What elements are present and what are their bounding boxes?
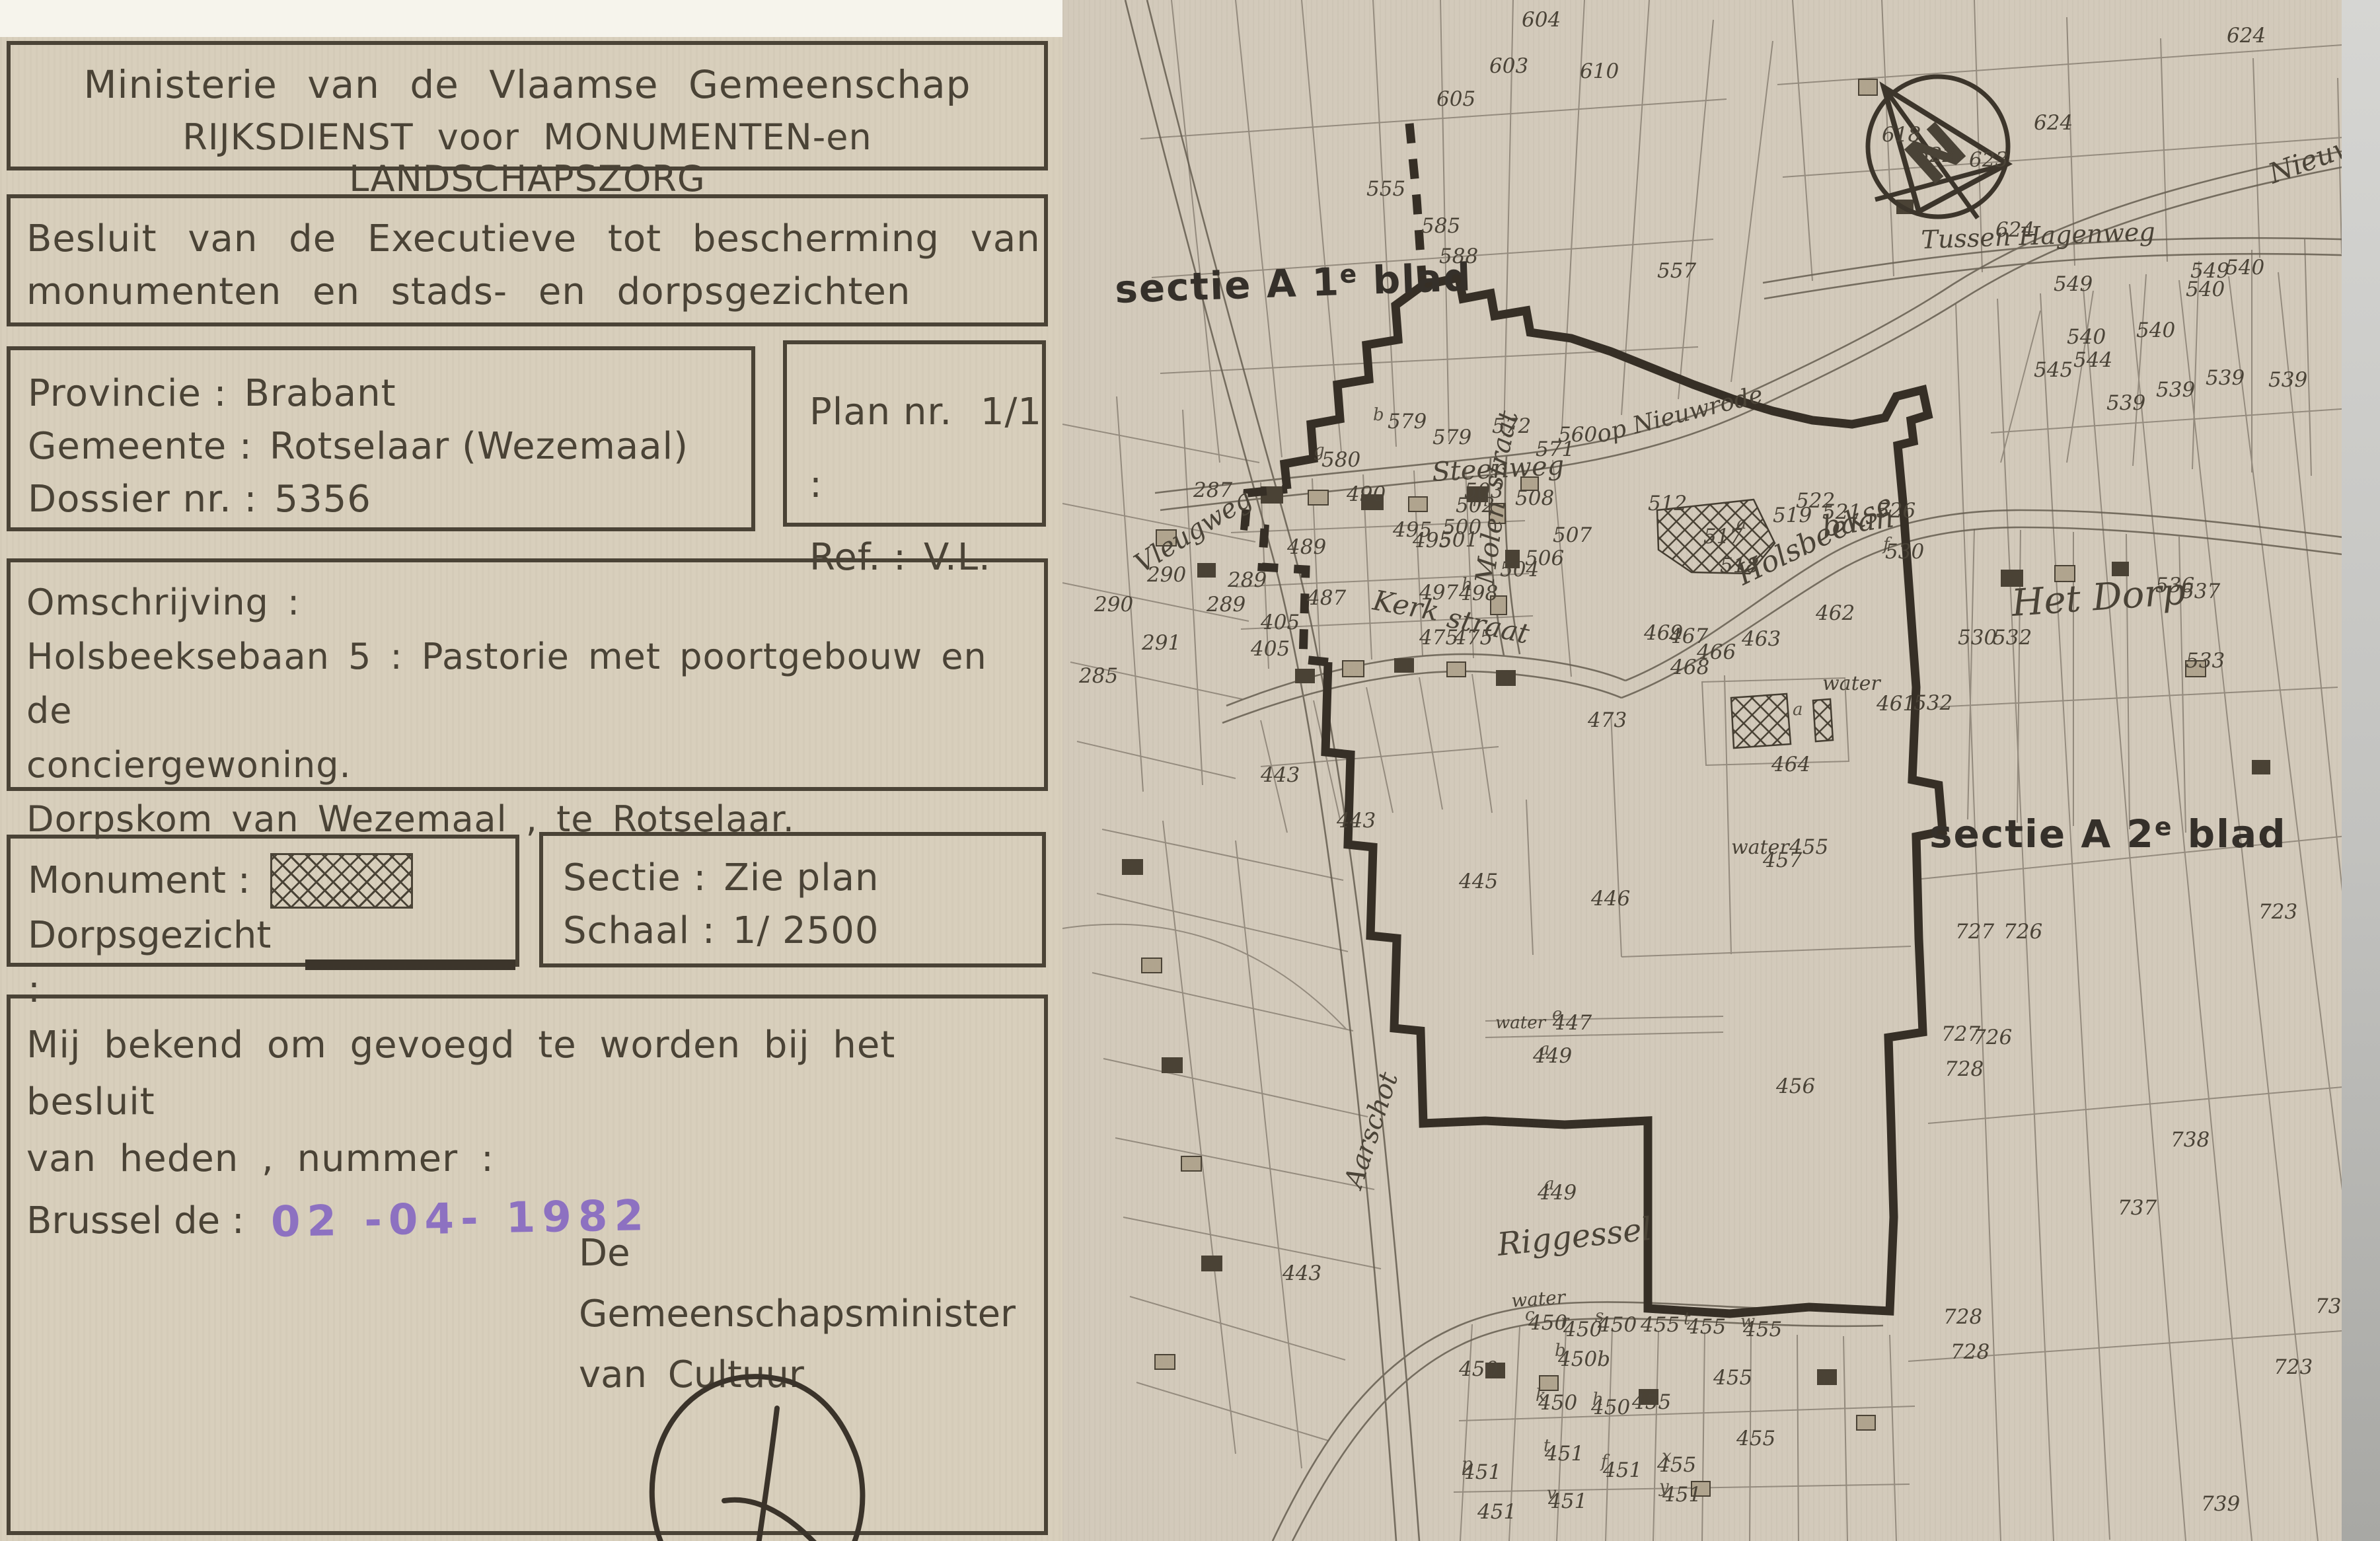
parcel-letter: a (1793, 700, 1803, 720)
parcel-number: 487 (1306, 586, 1346, 610)
dossier-row: Dossier nr. : 5356 (28, 473, 751, 526)
parcel-number: 579 (1432, 426, 1471, 449)
parcel-number: 539 (2268, 368, 2307, 392)
field-label: Provincie : (28, 367, 227, 420)
parcel-number: 537 (2181, 580, 2220, 603)
scan-top-margin (0, 0, 1062, 37)
parcel-number: 530 (1885, 540, 1924, 564)
parcel-number: 285 (1078, 664, 1118, 688)
parcel-number: 560 (1558, 423, 1597, 447)
parcel-number: 533 (2186, 649, 2225, 673)
parcel-number: 728 (1951, 1340, 1990, 1364)
field-label: Dossier nr. : (28, 473, 257, 526)
parcel-number: 624 (2227, 24, 2266, 48)
scanned-decree-page: Ministerie van de Vlaamse Gemeenschap RI… (0, 0, 2380, 1541)
field-value: Zie plan (724, 852, 879, 905)
parcel-letter: r (1561, 1312, 1570, 1332)
parcel-number: 455 (1640, 1313, 1680, 1337)
scale-row: Schaal : 1/ 2500 (563, 905, 1042, 958)
parcel-number: 540 (2067, 325, 2106, 349)
parcel-number: 462 (1815, 601, 1855, 625)
field-value: 1/1 (981, 376, 1042, 521)
parcel-letter: a (1736, 513, 1747, 533)
parcel-number: 489 (1286, 535, 1326, 559)
section-row: Sectie : Zie plan (563, 852, 1042, 905)
parcel-letter: b (1555, 1341, 1566, 1361)
legend-box: Monument : Dorpsgezicht : (7, 835, 519, 967)
parcel-number: 604 (1522, 8, 1561, 32)
street-label: Aarschot (1338, 1068, 1405, 1194)
field-label: Gemeente : (28, 420, 252, 473)
parcel-number: 580 (1321, 448, 1360, 472)
field-value: 5356 (274, 473, 371, 526)
parcel-number: 605 (1436, 87, 1475, 111)
street-label: Tussen Hagenweg (1921, 217, 2156, 254)
parcel-number: 469 (1643, 621, 1683, 645)
dorpsgezicht-line-swatch (305, 959, 515, 970)
annex-line: Mij bekend om gevoegd te worden bij het … (26, 1017, 1044, 1131)
parcel-number: 530 (1958, 626, 1997, 650)
parcel-number: 468 (1670, 656, 1709, 679)
field-label: Schaal : (563, 905, 716, 958)
annex-line: van heden , nummer : (26, 1131, 1044, 1187)
parcel-number: 405 (1260, 611, 1300, 634)
legend-monument-row: Monument : (28, 853, 515, 909)
parcel-number: 727 (1955, 920, 1994, 944)
description-box: Omschrijving : Holsbeeksebaan 5 : Pastor… (7, 558, 1048, 791)
plan-row: Plan nr. : 1/1 (809, 376, 1042, 521)
parcel-letter: t (1684, 1309, 1691, 1329)
agency-title: RIJKSDIENST voor MONUMENTEN-en LANDSCHAP… (11, 116, 1044, 200)
ministry-title: Ministerie van de Vlaamse Gemeenschap (11, 62, 1044, 107)
monument-hatch-swatch (270, 853, 413, 909)
parcel-number: 532 (1993, 626, 2032, 650)
parcel-number: 449 (1537, 1181, 1577, 1205)
parcel-number: 464 (1771, 753, 1810, 776)
parcel-letter: h (1592, 1390, 1604, 1409)
parcel-number: 446 (1590, 887, 1630, 911)
field-label: Plan nr. : (809, 376, 963, 521)
parcel-number: 507 (1553, 523, 1592, 547)
parcel-number: 555 (1366, 177, 1405, 201)
parcel-number: 723 (2274, 1355, 2313, 1379)
parcel-number: 540 (2225, 256, 2264, 280)
section-label: sectie A 1e blad (1114, 254, 1473, 312)
parcel-number: 449 (1532, 1044, 1572, 1068)
parcel-number: 473 (1587, 708, 1627, 732)
parcel-number: 549 (2054, 272, 2093, 296)
province-row: Provincie : Brabant (28, 367, 751, 420)
parcel-number: 289 (1227, 568, 1267, 592)
parcel-letter: y (1658, 1477, 1669, 1497)
description-title: Omschrijving : (26, 576, 1044, 630)
parcel-letter: v (1547, 1484, 1557, 1503)
parcel-number: 443 (1260, 763, 1300, 787)
parcel-number: 739 (2201, 1492, 2240, 1516)
parcel-number: 539 (2156, 378, 2195, 402)
parcel-number: 289 (1206, 593, 1246, 617)
parcel-number: 455 (1789, 835, 1828, 859)
description-line: conciergewoning. (26, 738, 1044, 792)
parcel-number: 455 (1713, 1366, 1752, 1390)
parcel-number: 618 (1882, 123, 1921, 147)
header-box: Ministerie van de Vlaamse Gemeenschap RI… (7, 41, 1048, 170)
street-label: water (1495, 1013, 1547, 1033)
parcel-number: 291 (1141, 631, 1181, 655)
province-box: Provincie : Brabant Gemeente : Rotselaar… (7, 346, 755, 531)
parcel-number: 443 (1336, 809, 1376, 833)
parcel-number: 290 (1094, 593, 1133, 617)
cadastral-map: N 60461060360555558558855758057957957257… (1062, 0, 2380, 1541)
legend-label: Monument : (28, 854, 250, 908)
parcel-number: 463 (1741, 627, 1781, 651)
parcel-number: 610 (1580, 59, 1619, 83)
parcel-number: 726 (2003, 920, 2042, 944)
parcel-number: 461 (1876, 692, 1915, 716)
place-label: Riggessel (1495, 1211, 1653, 1263)
parcel-number: 508 (1515, 486, 1554, 510)
parcel-number: 539 (2106, 391, 2145, 415)
parcel-number: 727 (1941, 1022, 1980, 1046)
parcel-number: 443 (1282, 1261, 1321, 1285)
parcel-number: 445 (1458, 870, 1498, 893)
parcel-number: 455 (1736, 1427, 1775, 1450)
field-label: Sectie : (563, 852, 706, 905)
scanner-edge (2342, 0, 2380, 1541)
parcel-number: 506 (1525, 546, 1564, 570)
map-panel: N 60461060360555558558855758057957957257… (1062, 0, 2380, 1541)
minister-line: De Gemeenschapsminister (579, 1223, 1044, 1345)
field-value: Brabant (244, 367, 396, 420)
parcel-number: 451 (1477, 1500, 1516, 1524)
parcel-number: 456 (1775, 1074, 1815, 1098)
parcel-number: 579 (1388, 410, 1427, 433)
parcel-number: 585 (1421, 214, 1460, 238)
parcel-number: 540 (2136, 319, 2175, 342)
plan-box: Plan nr. : 1/1 Ref. : V.L. (783, 340, 1046, 527)
parcel-letter: a (1544, 1174, 1555, 1194)
parcel-number: 728 (1945, 1057, 1984, 1081)
parcel-number: 623 (1969, 148, 2008, 172)
parcel-letter: t (1543, 1436, 1551, 1456)
parcel-letter: w (1740, 1312, 1755, 1332)
document-panel: Ministerie van de Vlaamse Gemeenschap RI… (0, 0, 1062, 1541)
parcel-number: 728 (1943, 1305, 1982, 1329)
decree-box: Besluit van de Executieve tot beschermin… (7, 194, 1048, 326)
street-label: water (1731, 836, 1790, 859)
decree-line: Besluit van de Executieve tot beschermin… (26, 213, 1044, 266)
parcel-number: 450 (1458, 1357, 1498, 1381)
field-value: 1/ 2500 (733, 905, 879, 958)
parcel-number: 737 (2118, 1196, 2157, 1220)
field-value: Rotselaar (Wezemaal) (270, 420, 688, 473)
parcel-number: 545 (2034, 358, 2073, 382)
parcel-number: 738 (2171, 1128, 2210, 1152)
annex-box: Mij bekend om gevoegd te worden bij het … (7, 995, 1048, 1535)
decree-line: monumenten en stads- en dorpsgezichten (26, 266, 1044, 319)
street-label: water (1510, 1286, 1567, 1312)
parcel-letter: b (1373, 405, 1384, 425)
parcel-number: 405 (1250, 637, 1290, 661)
parcel-letter: g (1314, 441, 1325, 461)
parcel-number: 532 (1914, 691, 1952, 715)
parcel-number: 455 (1686, 1315, 1726, 1339)
parcel-letter: e (1552, 1004, 1562, 1024)
scale-box: Sectie : Zie plan Schaal : 1/ 2500 (539, 832, 1046, 967)
parcel-letter: k (1536, 1386, 1546, 1406)
parcel-number: 501 (1439, 528, 1478, 552)
parcel-number: 624 (2034, 111, 2073, 135)
section-label: sectie A 2e blad (1929, 811, 2287, 856)
parcel-number: 557 (1657, 259, 1696, 283)
minister-signature (592, 1342, 1015, 1541)
street-label: water (1822, 672, 1881, 695)
parcel-number: 455 (1631, 1390, 1671, 1414)
parcel-number: 540 (2186, 278, 2225, 301)
parcel-number: 723 (2258, 900, 2297, 924)
parcel-letter: s (1595, 1306, 1604, 1326)
field-label: Brussel de : (26, 1189, 244, 1253)
place-label: Het Dorp (2009, 570, 2186, 625)
parcel-letter: p (1462, 1454, 1473, 1474)
parcel-number: 512 (1648, 492, 1687, 515)
municipality-row: Gemeente : Rotselaar (Wezemaal) (28, 420, 751, 473)
description-line: Holsbeeksebaan 5 : Pastorie met poortgeb… (26, 630, 1044, 738)
parcel-number: 622 (1916, 143, 1955, 167)
parcel-number: 603 (1489, 54, 1528, 78)
parcel-letter: a (1540, 1039, 1550, 1059)
parcel-number: 539 (2206, 366, 2245, 390)
parcel-number: 490 (1346, 482, 1386, 506)
parcel-letter: x (1662, 1447, 1672, 1466)
parcel-number: 451 (1602, 1458, 1642, 1482)
parcel-number: 544 (2073, 348, 2112, 372)
